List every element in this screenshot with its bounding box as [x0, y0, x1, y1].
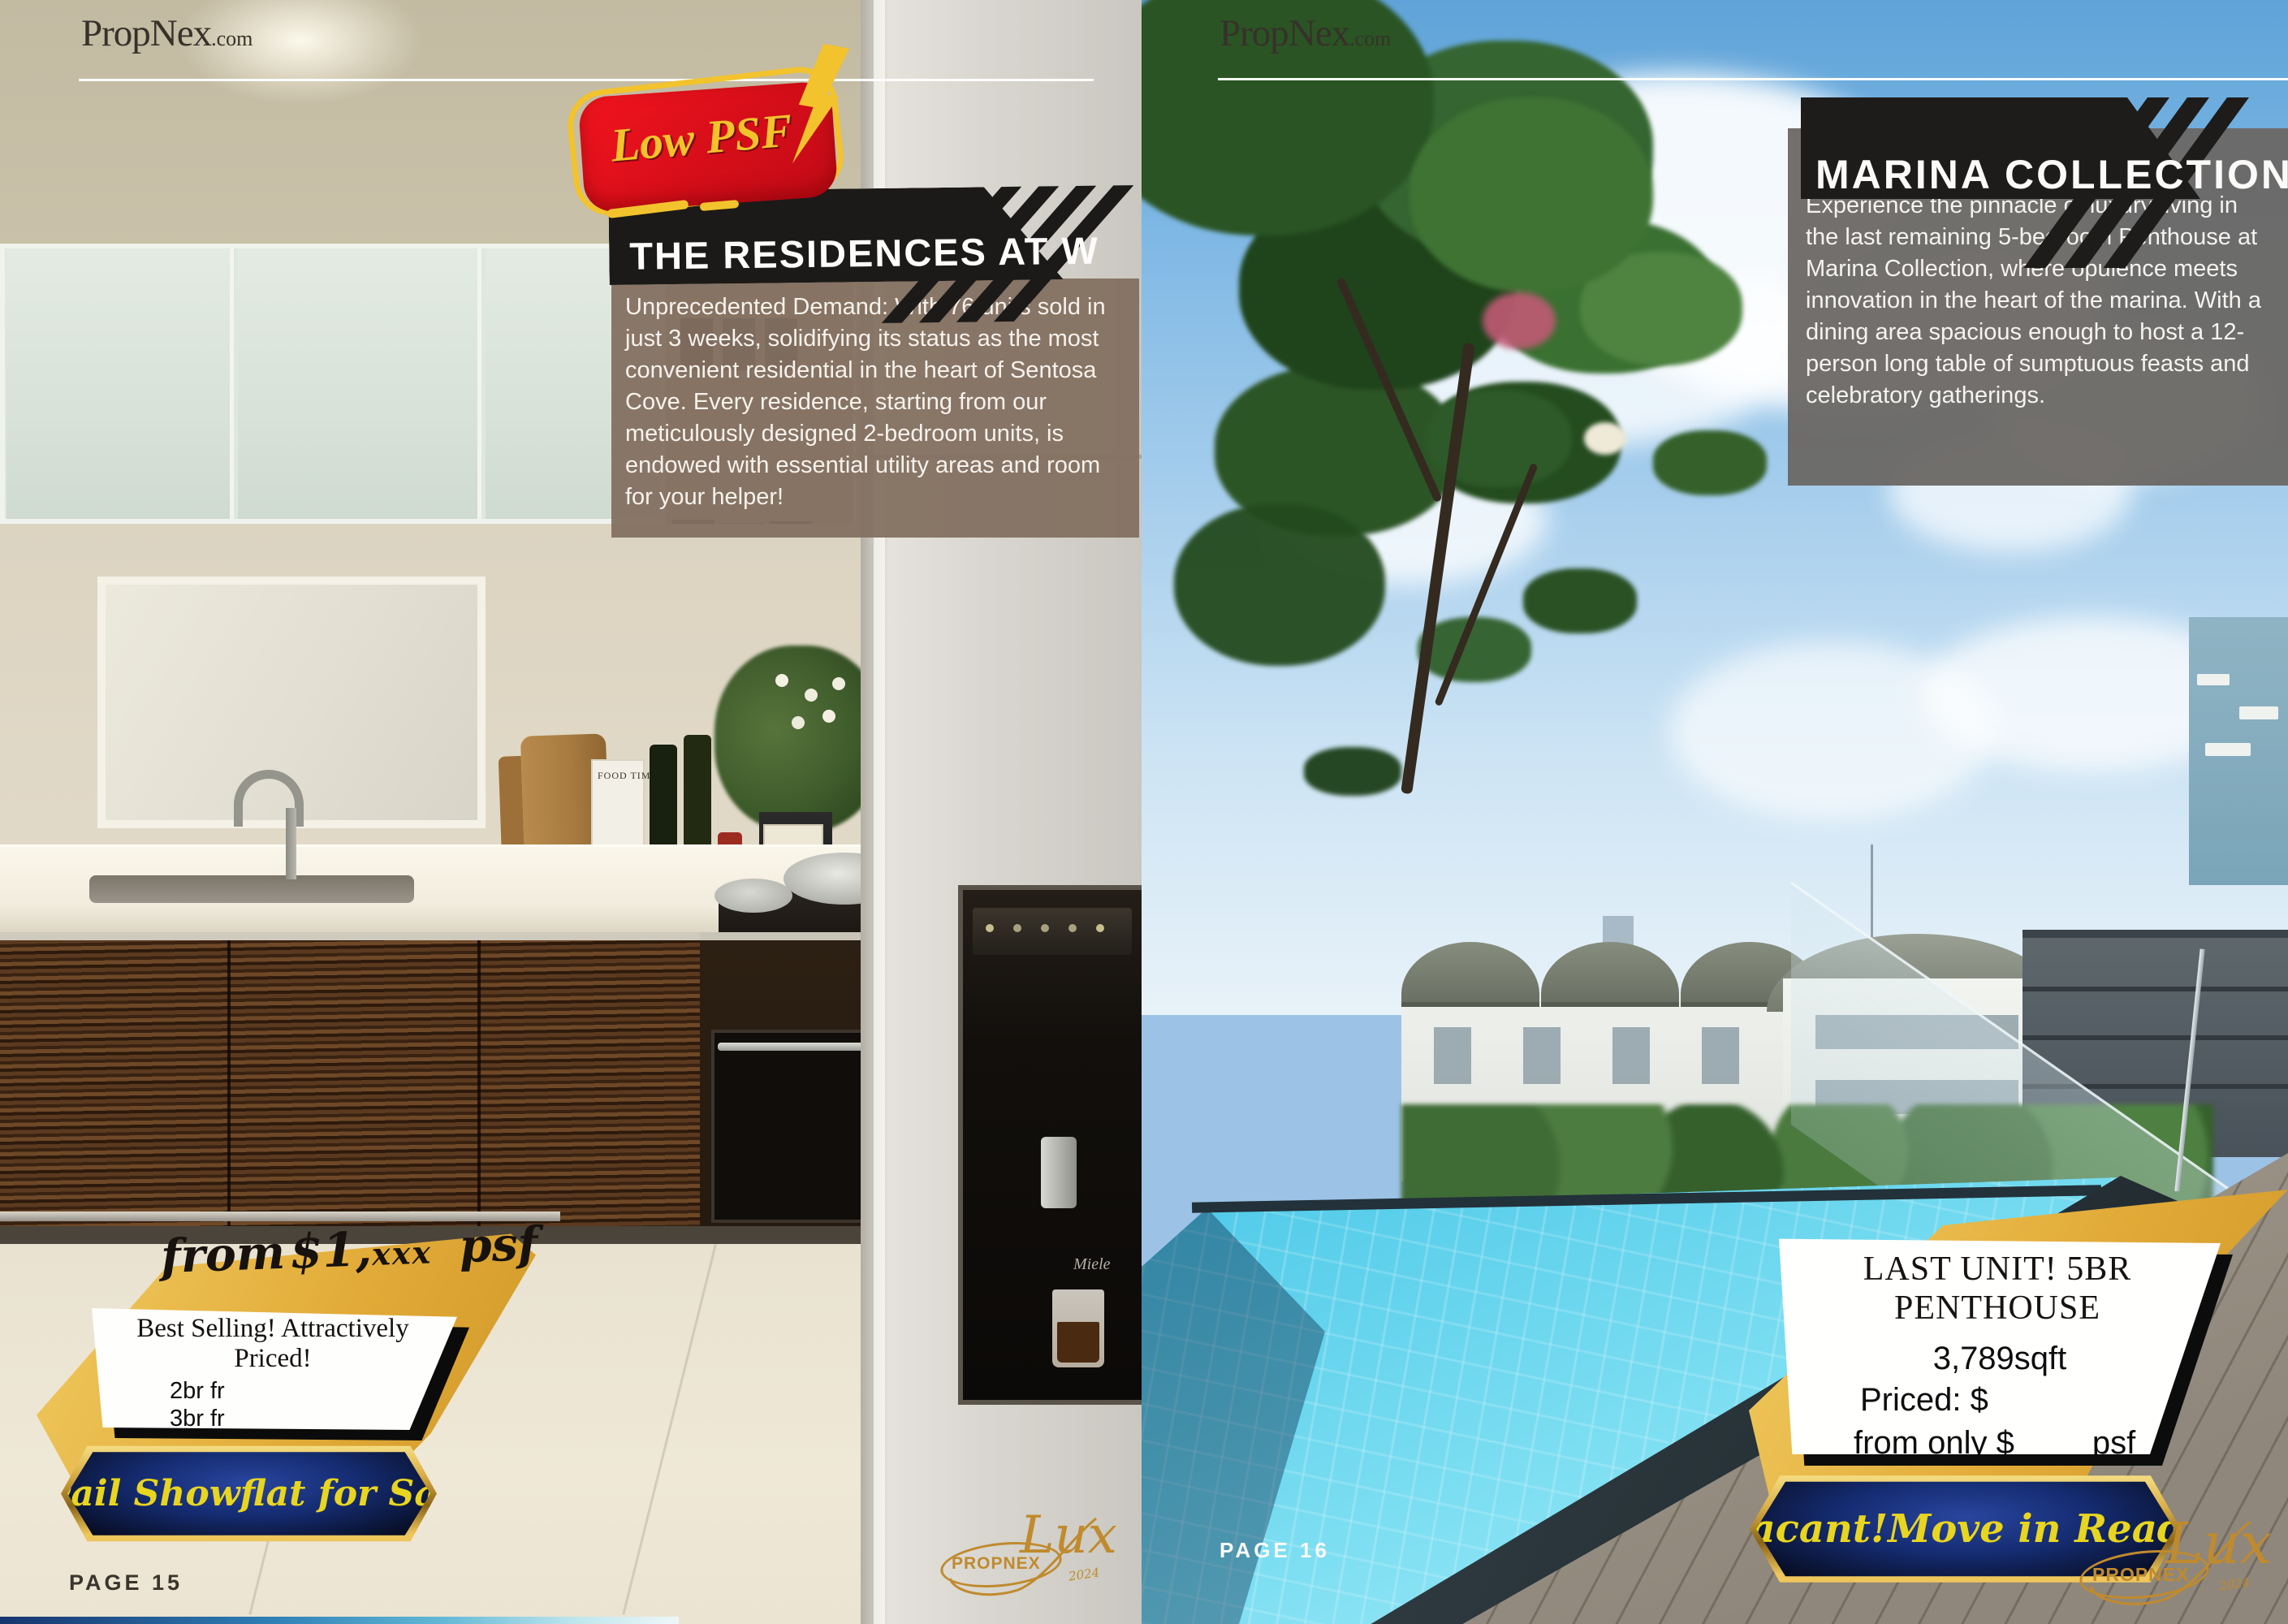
propnex-lux-logo: PROPNEX Lux 2024: [940, 1515, 1111, 1600]
page-15: FOOD TIME: [0, 0, 1142, 1624]
price-from: from: [160, 1225, 286, 1284]
kitchen-cabinet-door: [6, 248, 234, 519]
coffee-spout: [1041, 1137, 1077, 1208]
description-panel: Unprecedented Demand: With 76 units sold…: [611, 279, 1139, 538]
apartment-floor-line: [2023, 987, 2288, 991]
kitchen-sink: [89, 875, 414, 903]
plant-flowers: [775, 674, 788, 687]
page-title: MARINA COLLECTION: [1815, 151, 2288, 198]
ribbon-label: Avail Showflat for Sale: [24, 1473, 473, 1514]
propnex-lux-logo: PROPNEX Lux 2024: [2079, 1518, 2266, 1612]
propnex-logo-text: PropNex: [1220, 12, 1349, 54]
brochure-spread: FOOD TIME: [0, 0, 2288, 1624]
oven-handle: [718, 1043, 864, 1051]
built-in-oven: [711, 1030, 870, 1223]
photo-edge-strip: [0, 1617, 679, 1624]
offer-headline: LAST UNIT! 5BR PENTHOUSE: [1794, 1250, 2201, 1328]
tree-foliage: [1409, 97, 1653, 292]
coffee: [1057, 1322, 1099, 1363]
lux-script-text: Lux: [1020, 1505, 1117, 1566]
propnex-logo-tld: .com: [211, 27, 253, 50]
magazine-title: FOOD TIME: [598, 770, 658, 782]
building-window: [1434, 1027, 1471, 1084]
propnex-logo: PropNex.com: [81, 11, 253, 55]
window-wood-reflection: [122, 586, 187, 818]
title-banner-right: MARINA COLLECTION: [1801, 97, 2288, 199]
price-amount: $1,: [289, 1221, 373, 1279]
header-rule: [1218, 78, 2288, 80]
building-window: [1523, 1027, 1561, 1084]
coffee-machine-buttons: [986, 924, 994, 932]
boat: [2239, 706, 2278, 719]
faucet-stem: [286, 808, 296, 879]
cabinet-seam: [227, 940, 231, 1226]
apartment-floor-line: [2023, 1035, 2288, 1040]
coffee-machine-display: [973, 908, 1132, 955]
boat: [2197, 674, 2230, 685]
boat: [2205, 743, 2251, 756]
building-window: [1612, 1027, 1650, 1084]
pink-flowers: [1483, 292, 1556, 349]
kitchen-cabinet-door: [238, 248, 481, 519]
offer-headline: Best Selling! Attractively Priced!: [97, 1314, 449, 1374]
cabinet-seam: [477, 940, 481, 1226]
page-16: PropNex.com MARINA COLLECTION Experience…: [1142, 0, 2288, 1624]
tree-foliage: [1174, 503, 1385, 666]
page-number: PAGE 16: [1220, 1538, 1330, 1563]
offer-box: Best Selling! Attractively Priced! 2br f…: [92, 1306, 457, 1430]
appliance-brand-label: Miele: [1073, 1255, 1111, 1274]
price-unit: psf: [459, 1216, 539, 1273]
building-window: [1702, 1027, 1739, 1084]
counter-plant: [714, 646, 885, 832]
propnex-logo-text: PropNex: [81, 12, 211, 54]
kitchen-lower-cabinets-zebrawood: [0, 932, 700, 1226]
propnex-logo: PropNex.com: [1220, 11, 1391, 55]
lux-script-text: Lux: [2165, 1510, 2272, 1577]
page-number: PAGE 15: [69, 1570, 183, 1596]
white-flowers: [1584, 422, 1626, 455]
offer-size: 3,789sqft: [1779, 1341, 2221, 1377]
ribbon-navy-plate: Avail Showflat for Sale: [67, 1449, 430, 1538]
showflat-ribbon: Avail Showflat for Sale: [61, 1443, 437, 1544]
steel-pot: [714, 879, 792, 913]
propnex-logo-tld: .com: [1349, 27, 1391, 50]
low-psf-badge: Low PSF: [568, 42, 893, 253]
price-xxx: xxx: [371, 1233, 432, 1272]
offer-item: 2br fr: [170, 1377, 457, 1405]
offer-box: LAST UNIT! 5BR PENTHOUSE 3,789sqft Price…: [1779, 1237, 2221, 1454]
